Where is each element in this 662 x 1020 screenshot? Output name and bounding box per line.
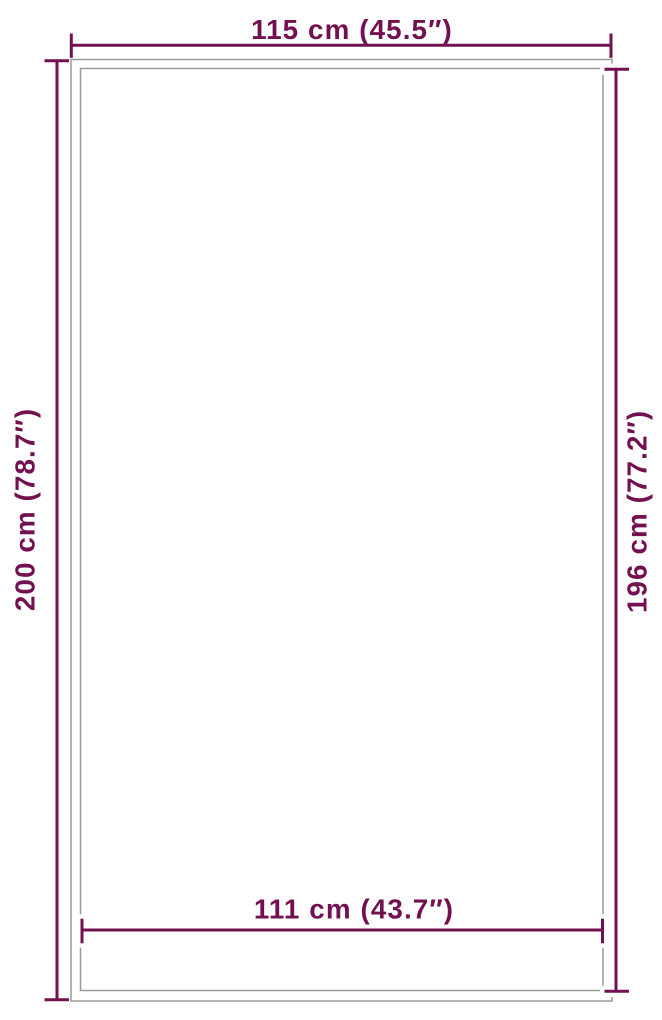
svg-text:115 cm (45.5″): 115 cm (45.5″) [251, 14, 453, 45]
svg-text:200 cm (78.7″): 200 cm (78.7″) [10, 408, 41, 611]
svg-text:111 cm (43.7″): 111 cm (43.7″) [254, 893, 454, 924]
svg-text:196 cm (77.2″): 196 cm (77.2″) [622, 410, 653, 613]
